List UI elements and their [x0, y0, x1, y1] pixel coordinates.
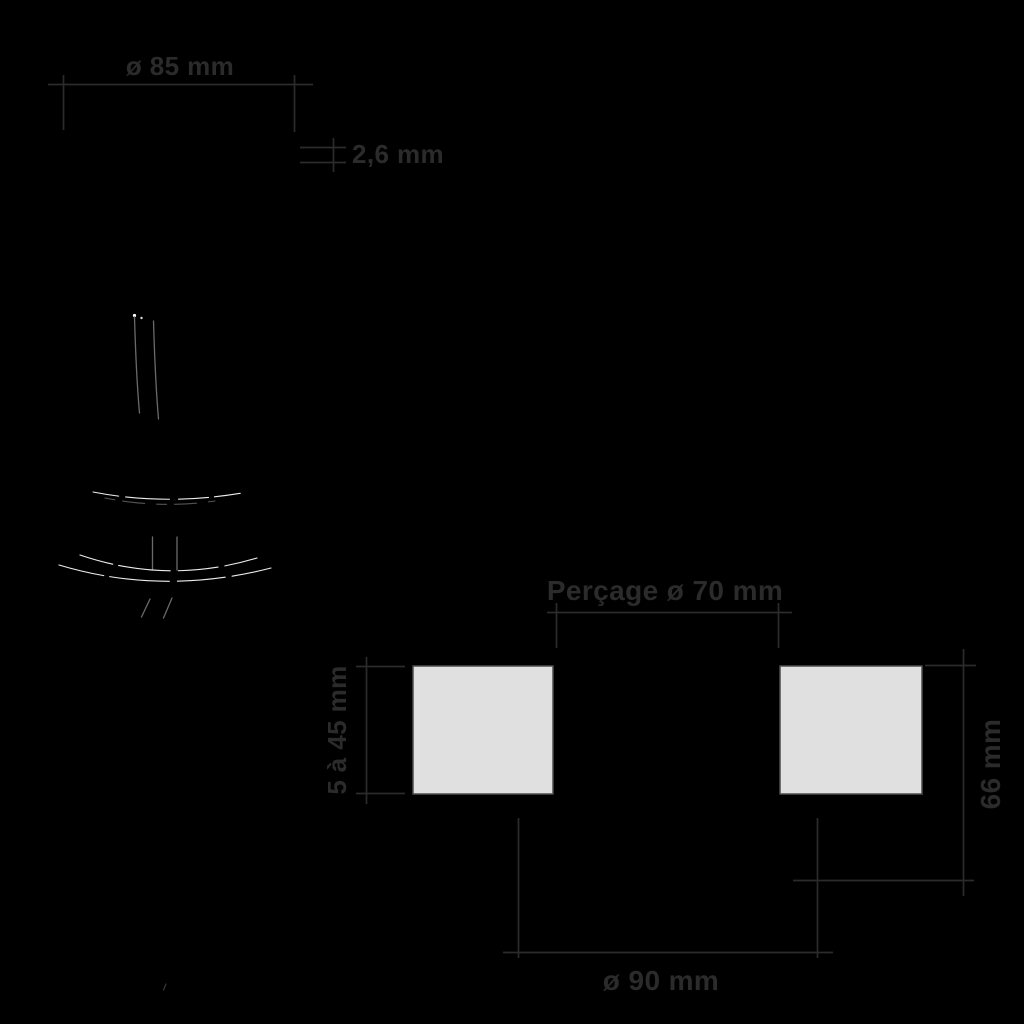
cable-top-glint [140, 317, 142, 319]
label-lamp-diameter: ø 85 mm [126, 53, 234, 79]
label-outer-diameter: ø 90 mm [603, 967, 719, 995]
cable-line [154, 321, 159, 419]
shade-top-rim [93, 492, 242, 499]
cable-line-bottom [142, 599, 151, 617]
dimension-drill-hole [547, 603, 792, 648]
technical-drawing-page: ø 85 mm 2,6 mm Perçage ø 70 mm 5 à 45 mm… [0, 0, 1024, 1024]
ceiling-panel-left [413, 666, 553, 794]
label-ceiling-thickness: 5 à 45 mm [324, 665, 350, 794]
ceiling-panel-right [780, 666, 922, 794]
shade-lower-rim [80, 555, 257, 571]
technical-drawing-canvas [0, 0, 1024, 1024]
dimension-glass-thickness [300, 138, 346, 172]
dimension-lamp-diameter [48, 75, 313, 132]
label-fixture-depth: 66 mm [977, 719, 1005, 810]
ceiling-cross-section [413, 666, 922, 794]
cable-line [135, 317, 140, 413]
dimension-outer-diameter [503, 818, 833, 958]
pendant-lamp-sketch [59, 314, 271, 990]
cable-glint-low [164, 984, 167, 990]
cable-line-bottom [164, 598, 173, 618]
label-drill-hole: Perçage ø 70 mm [547, 577, 783, 605]
label-glass-thickness: 2,6 mm [352, 141, 444, 167]
dimension-ceiling-thickness [356, 657, 405, 804]
shade-outer-rim [59, 565, 271, 581]
